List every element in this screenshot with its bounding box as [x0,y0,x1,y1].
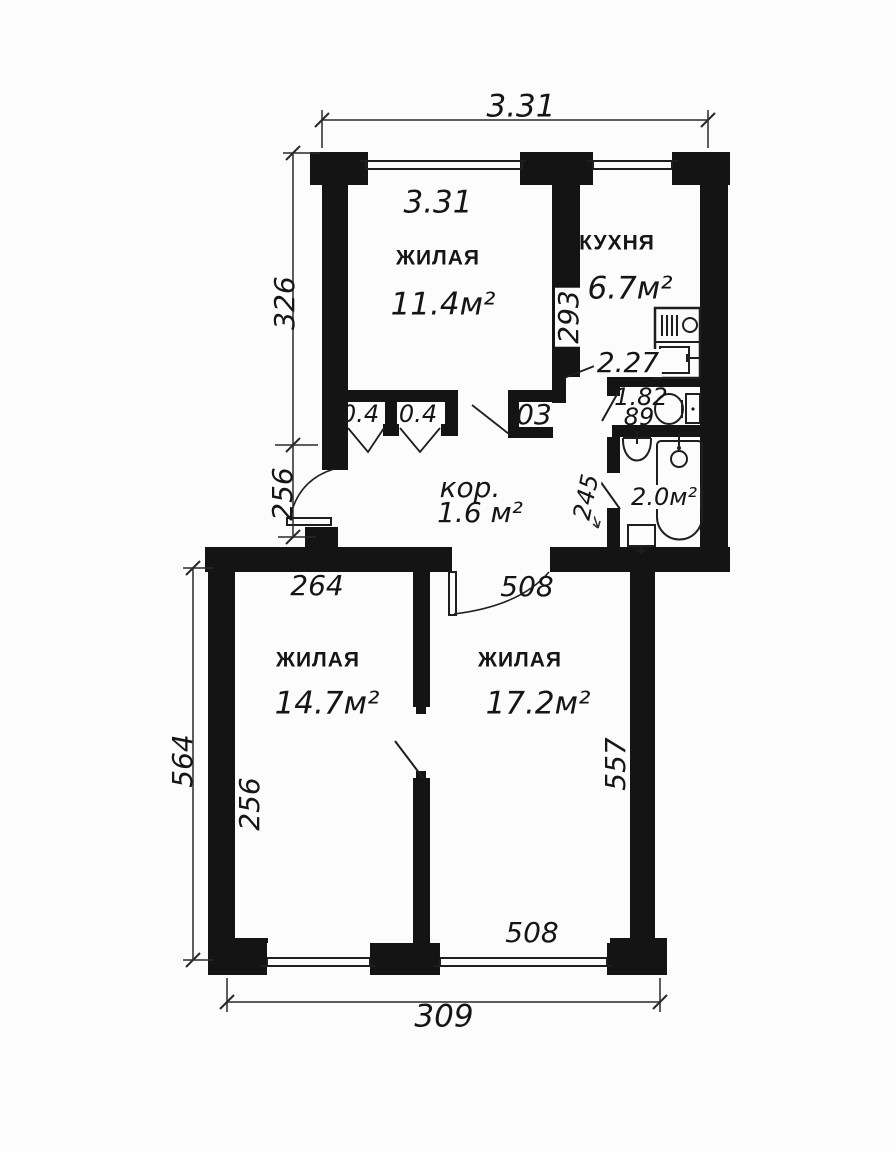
area-label-closet-left: 0.4 [341,402,379,426]
dim-bottom-overall: 309 [414,1002,473,1033]
dim-kitchen-depth: 293 [555,287,583,346]
dim-kitchen-width: 2.27 [594,349,662,377]
window-bottom-left [261,943,376,975]
closet-hall-leader-line [472,405,509,434]
room-divider-opening-line [395,741,423,778]
dim-living-left-width: 264 [290,572,343,600]
room-label-living-top: ЖИЛАЯ [396,248,480,269]
dim-left-lower-overall: 564 [169,734,197,787]
window-top-left [360,152,526,185]
dim-wc-width: 89 [624,405,655,429]
area-label-closet-hall: 03 [516,401,552,429]
room-label-kitchen: КУХНЯ [579,233,655,254]
area-label-kitchen: 6.7м² [587,274,672,305]
dim-living-right-depth: 557 [602,737,630,790]
dim-left-upper: 326 [271,276,299,329]
area-label-bathroom: 2.0м² [628,485,700,509]
dim-living-left-depth: 256 [236,777,264,830]
dim-living-top-width: 3.31 [403,188,472,219]
area-label-living-top: 11.4м² [391,290,496,321]
area-label-corridor: 1.6 м² [437,499,523,527]
floor-plan: 3.31 3.31 ЖИЛАЯ 11.4м² КУХНЯ 6.7м² 293 2… [0,0,896,1152]
area-label-living-right: 17.2м² [486,689,591,720]
dim-top-overall: 3.31 [486,92,555,123]
dim-left-entry: 256 [269,467,297,520]
floor-plan-drawing [0,0,896,1152]
area-label-living-left: 14.7м² [275,689,380,720]
dim-bottom-window: 508 [505,919,558,947]
room-label-living-left: ЖИЛАЯ [276,650,360,671]
dim-hall-door: 508 [500,573,553,601]
bathroom-door [600,481,620,509]
area-label-closet-mid: 0.4 [399,402,437,426]
window-top-right [587,152,678,185]
room-label-living-right: ЖИЛАЯ [478,650,562,671]
